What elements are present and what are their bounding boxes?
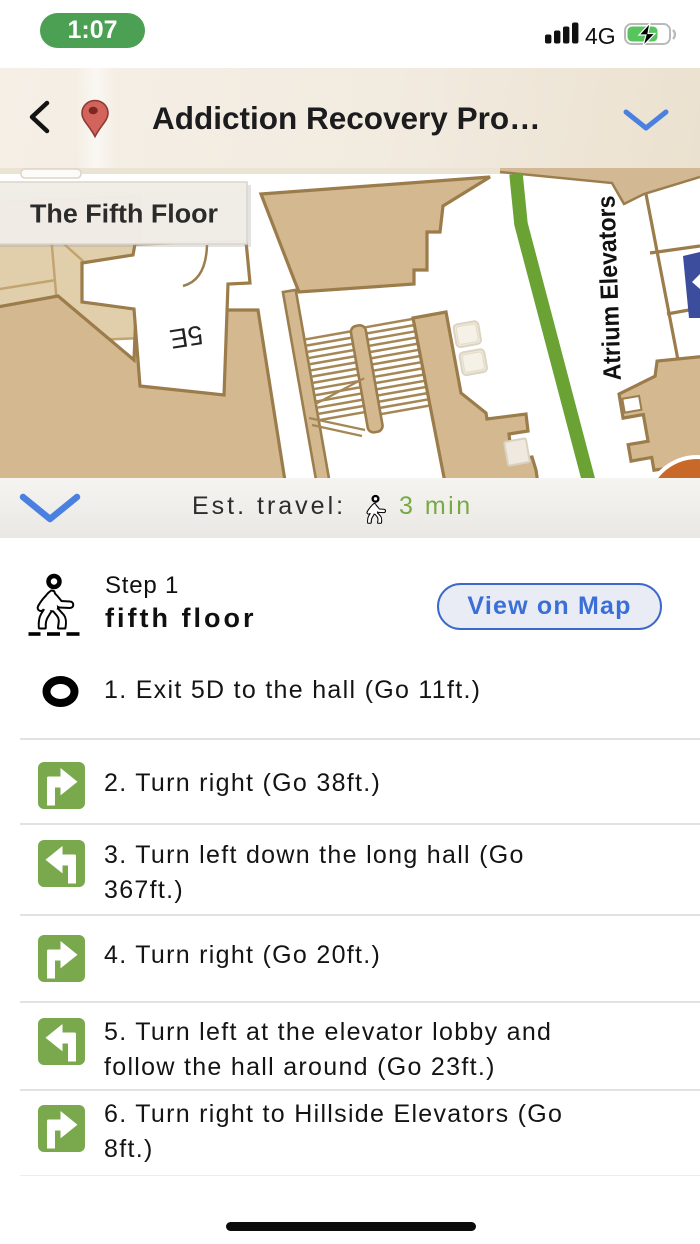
svg-text:5E: 5E [168, 319, 205, 354]
svg-text:The Fifth Floor: The Fifth Floor [30, 201, 218, 229]
